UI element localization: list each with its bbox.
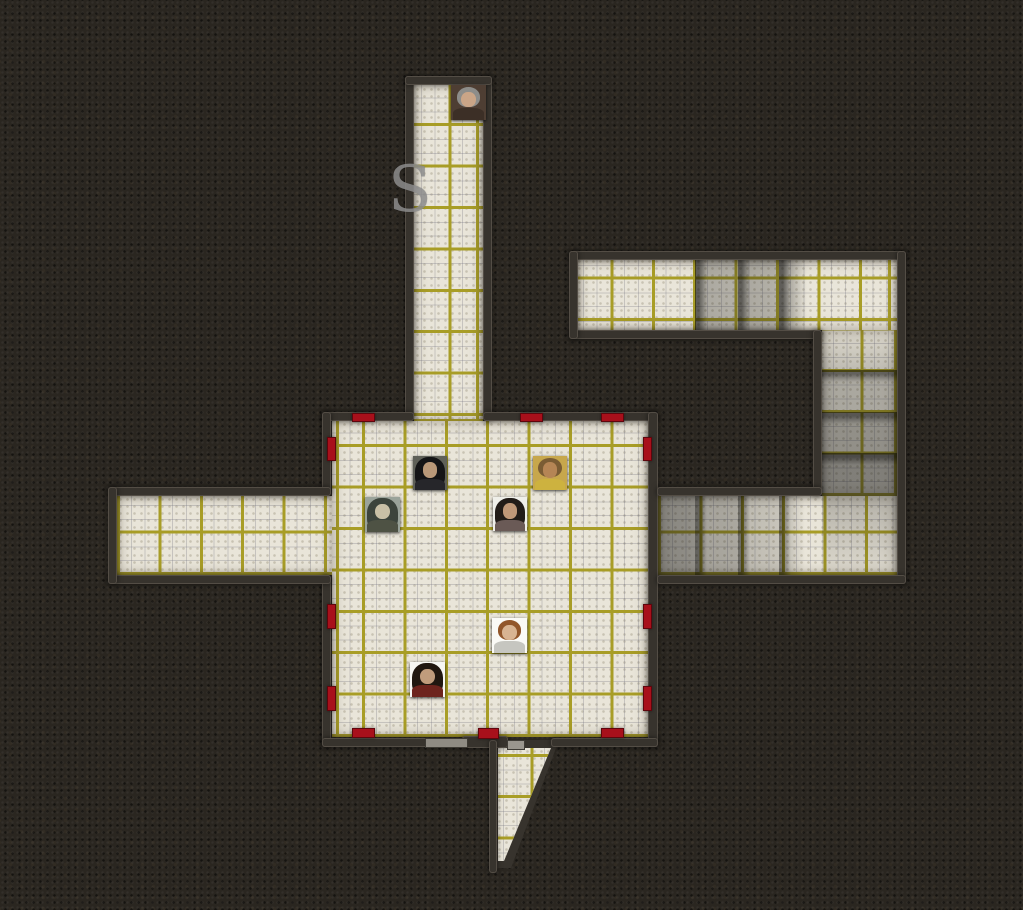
token-body <box>367 520 398 532</box>
token-face <box>503 503 517 518</box>
token-face <box>461 92 476 108</box>
token-dark-haired-warrior[interactable] <box>413 456 447 490</box>
door-room-right-3[interactable] <box>643 686 652 711</box>
wall-top-corridor-left <box>405 76 414 421</box>
token-body <box>415 479 445 490</box>
token-body <box>412 685 443 697</box>
secret-door-marking: S <box>388 158 432 222</box>
wall-tr-corridor-top <box>569 251 906 260</box>
token-face <box>543 462 557 477</box>
floor-top-right-corridor <box>578 260 897 330</box>
token-dark-haired-woman[interactable] <box>493 497 527 531</box>
token-body <box>453 108 484 120</box>
wall-mr-corridor-top <box>657 487 822 496</box>
token-brown-haired-youth[interactable] <box>492 618 527 653</box>
floor-left-corridor <box>117 496 332 575</box>
door-room-top-2[interactable] <box>520 413 543 422</box>
gray-door-1[interactable] <box>425 738 468 748</box>
wall-top-corridor-right <box>483 76 492 421</box>
door-room-bottom-2[interactable] <box>478 728 499 739</box>
wall-right-corridor-right <box>897 251 906 584</box>
wall-room-left-lower <box>322 575 331 747</box>
door-room-left-1[interactable] <box>327 437 336 461</box>
wall-top-corridor-cap <box>405 76 492 85</box>
floor-top-corridor <box>414 84 483 421</box>
door-room-left-2[interactable] <box>327 604 336 629</box>
token-body <box>495 520 525 531</box>
door-room-right-2[interactable] <box>643 604 652 629</box>
wall-passage-left-wall <box>489 740 497 873</box>
vtt-stage: S <box>0 0 1023 910</box>
map-canvas[interactable]: S <box>0 0 1023 910</box>
token-gold-clad-bearded[interactable] <box>533 456 567 490</box>
floor-central-room <box>332 421 648 737</box>
door-room-right-1[interactable] <box>643 437 652 461</box>
wall-room-bottom-right <box>551 738 658 747</box>
token-face <box>502 625 517 641</box>
token-wild-barbarian[interactable] <box>365 497 400 532</box>
wall-left-corridor-top <box>108 487 331 496</box>
wall-left-corridor-cap <box>108 487 117 584</box>
token-face <box>420 669 435 685</box>
wall-tr-corridor-bottom <box>569 330 822 339</box>
gray-door-2[interactable] <box>507 740 525 750</box>
wall-mr-corridor-bottom <box>657 575 906 584</box>
token-face <box>375 504 390 520</box>
floor-mid-right-corridor <box>658 496 897 575</box>
token-body <box>535 479 565 490</box>
token-body <box>494 641 525 653</box>
token-face <box>423 462 437 477</box>
wall-room-top-right <box>483 412 658 421</box>
floor-right-corridor <box>822 330 897 496</box>
token-bald-elder[interactable] <box>451 85 486 120</box>
door-room-top-1[interactable] <box>352 413 375 422</box>
wall-tr-corridor-cap <box>569 251 578 339</box>
wall-right-corridor-left <box>813 330 822 496</box>
door-room-left-3[interactable] <box>327 686 336 711</box>
wall-left-corridor-bottom <box>108 575 331 584</box>
door-room-bottom-3[interactable] <box>601 728 624 738</box>
door-room-bottom-1[interactable] <box>352 728 375 738</box>
door-room-top-3[interactable] <box>601 413 624 422</box>
token-maroon-clad-man[interactable] <box>410 662 445 697</box>
